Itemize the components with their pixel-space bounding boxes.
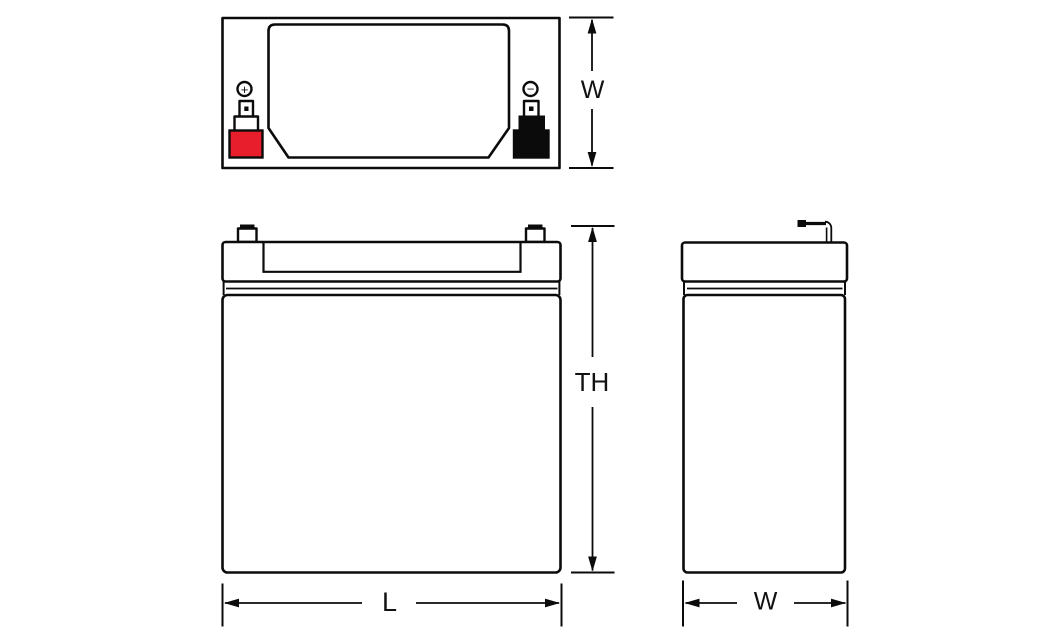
front-seam (224, 282, 560, 296)
front-lid (223, 242, 561, 282)
side-body (684, 295, 846, 573)
dimension-top-width: W (569, 18, 614, 169)
arrowhead-left (685, 599, 700, 608)
front-terminal-right (526, 225, 545, 243)
positive-terminal-base (230, 131, 263, 158)
positive-terminal-blade-hole (244, 107, 248, 112)
arrowhead-right (545, 599, 560, 608)
tab-tip (798, 220, 807, 227)
front-terminal-right-post (526, 229, 545, 243)
front-terminal-left-post (238, 229, 257, 243)
side-terminal-tab (798, 220, 832, 243)
positive-marker-symbol: + (241, 82, 249, 97)
negative-terminal-base (514, 131, 549, 158)
arrowhead-right (831, 599, 846, 608)
side-seam (684, 282, 845, 296)
top-view-lid-face (269, 25, 510, 158)
dimension-side-width: W (683, 581, 848, 627)
arrowhead-down (588, 152, 597, 167)
front-terminal-left (238, 225, 257, 243)
dimension-length: L (223, 584, 562, 627)
battery-dimension-drawing: + − W (0, 0, 1040, 638)
dimension-label-w-side: W (754, 588, 778, 616)
side-view (682, 220, 847, 573)
arrowhead-down (588, 557, 597, 572)
dimension-label-w-top: W (581, 76, 605, 104)
front-view (223, 225, 561, 573)
arrowhead-up (588, 227, 597, 242)
dimension-total-height: TH (571, 226, 615, 573)
front-body (223, 295, 561, 573)
positive-terminal-neck (235, 117, 259, 132)
drawing-svg: + − W (0, 0, 1040, 638)
negative-marker-symbol: − (527, 81, 535, 96)
arrowhead-up (588, 19, 597, 34)
top-view: + − (223, 18, 560, 168)
negative-terminal-blade-hole (529, 107, 534, 112)
negative-terminal-neck (520, 117, 545, 132)
dimension-label-l: L (382, 587, 397, 617)
side-lid (682, 243, 847, 282)
arrowhead-left (224, 599, 239, 608)
dimension-label-th: TH (575, 367, 610, 397)
